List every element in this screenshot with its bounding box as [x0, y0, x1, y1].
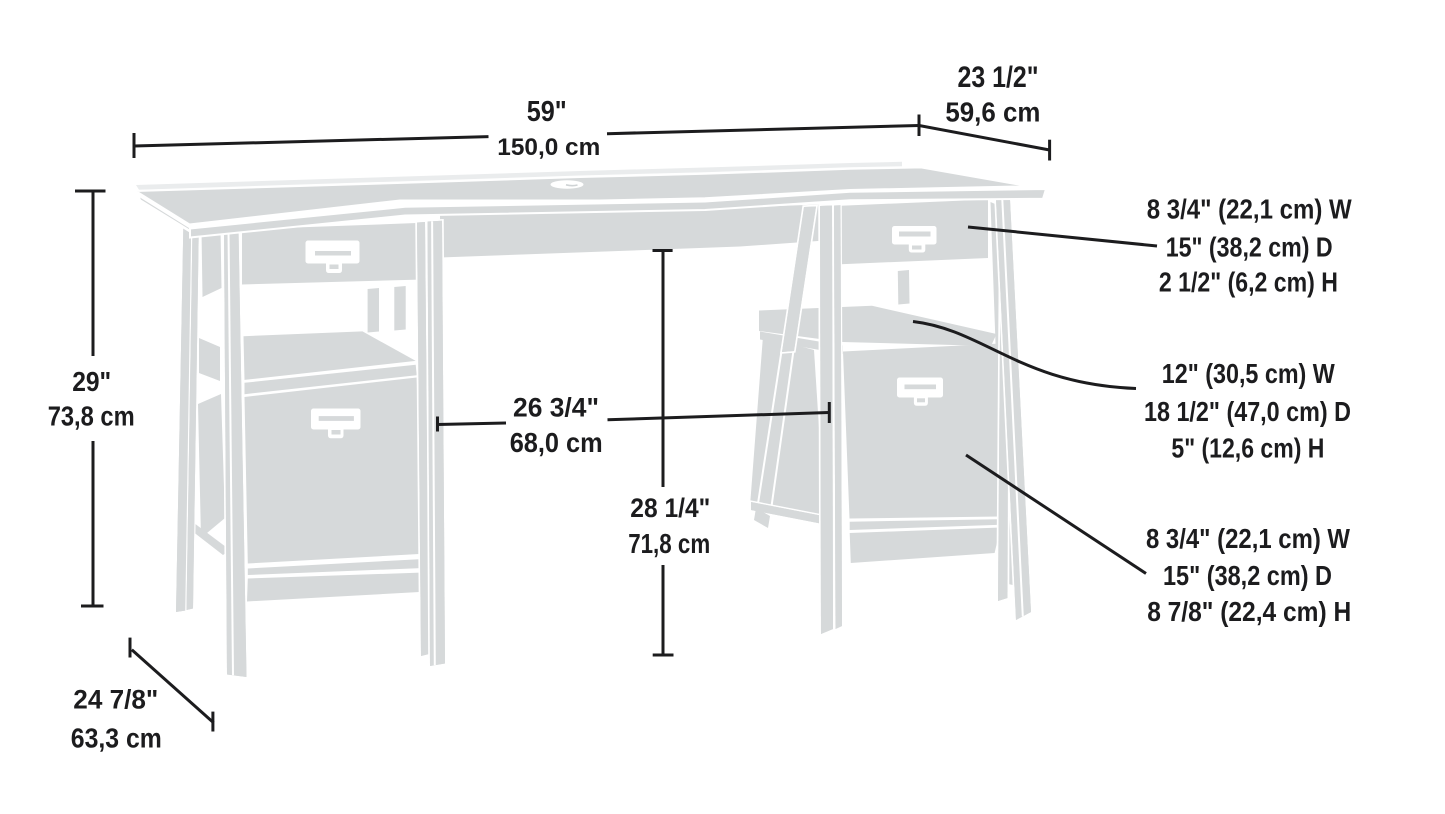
svg-text:15" (38,2 cm) D: 15" (38,2 cm) D [1163, 560, 1332, 591]
svg-text:29": 29" [72, 366, 111, 397]
svg-text:24 7/8": 24 7/8" [73, 685, 158, 715]
svg-text:63,3 cm: 63,3 cm [71, 723, 162, 754]
svg-text:73,8 cm: 73,8 cm [48, 401, 135, 432]
svg-text:28 1/4": 28 1/4" [630, 493, 710, 523]
svg-text:2 1/2" (6,2 cm) H: 2 1/2" (6,2 cm) H [1159, 266, 1338, 297]
svg-text:18 1/2" (47,0 cm) D: 18 1/2" (47,0 cm) D [1144, 396, 1351, 427]
svg-text:150,0 cm: 150,0 cm [497, 134, 600, 161]
svg-text:26 3/4": 26 3/4" [513, 393, 599, 423]
svg-text:8 3/4" (22,1 cm) W: 8 3/4" (22,1 cm) W [1146, 523, 1350, 554]
svg-text:8 7/8" (22,4 cm) H: 8 7/8" (22,4 cm) H [1147, 596, 1351, 627]
svg-text:71,8 cm: 71,8 cm [628, 528, 710, 559]
svg-text:5" (12,6 cm) H: 5" (12,6 cm) H [1171, 433, 1324, 464]
svg-text:59,6 cm: 59,6 cm [945, 97, 1040, 128]
svg-text:68,0 cm: 68,0 cm [510, 427, 603, 458]
svg-text:23 1/2": 23 1/2" [958, 61, 1039, 94]
svg-text:59": 59" [527, 96, 567, 128]
svg-text:15" (38,2 cm) D: 15" (38,2 cm) D [1166, 232, 1333, 263]
svg-text:8 3/4" (22,1 cm) W: 8 3/4" (22,1 cm) W [1147, 194, 1352, 225]
svg-text:12" (30,5 cm) W: 12" (30,5 cm) W [1162, 358, 1335, 389]
